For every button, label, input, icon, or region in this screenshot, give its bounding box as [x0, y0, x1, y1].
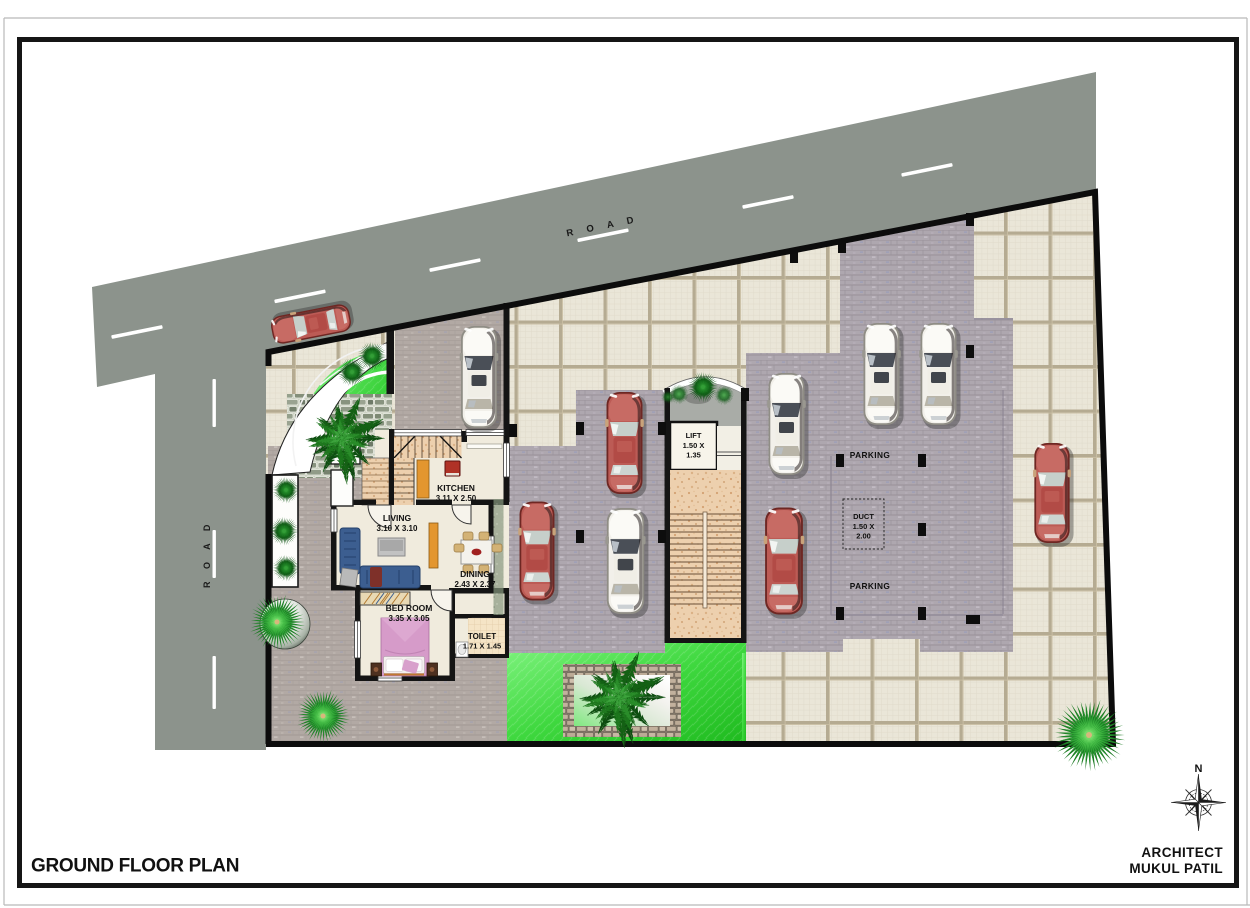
svg-text:KITCHEN: KITCHEN [437, 483, 475, 493]
svg-text:R O A D: R O A D [202, 520, 212, 588]
svg-text:LIFT: LIFT [686, 431, 702, 440]
svg-text:DUCT: DUCT [853, 512, 874, 521]
svg-text:ARCHITECT: ARCHITECT [1141, 845, 1223, 860]
svg-text:3.10 X 3.10: 3.10 X 3.10 [377, 524, 418, 533]
svg-text:PARKING: PARKING [850, 450, 890, 460]
svg-text:N: N [1195, 763, 1203, 775]
svg-text:LIVING: LIVING [383, 513, 412, 523]
svg-text:1.50 X: 1.50 X [683, 441, 705, 450]
svg-text:PARKING: PARKING [850, 581, 890, 591]
svg-text:GROUND FLOOR PLAN: GROUND FLOOR PLAN [31, 856, 239, 877]
svg-text:BED ROOM: BED ROOM [386, 603, 433, 613]
svg-text:3.35 X 3.05: 3.35 X 3.05 [389, 614, 430, 623]
svg-text:1.35: 1.35 [686, 451, 701, 460]
svg-text:1.50 X: 1.50 X [853, 522, 875, 531]
svg-text:2.43 X 2.37: 2.43 X 2.37 [455, 580, 496, 589]
svg-text:TOILET: TOILET [468, 632, 496, 641]
svg-text:3.11 X 2.50: 3.11 X 2.50 [436, 494, 477, 503]
svg-text:1.71 X 1.45: 1.71 X 1.45 [463, 642, 501, 651]
svg-text:2.00: 2.00 [856, 532, 871, 541]
svg-text:MUKUL PATIL: MUKUL PATIL [1129, 861, 1223, 876]
svg-text:DINING: DINING [460, 569, 490, 579]
